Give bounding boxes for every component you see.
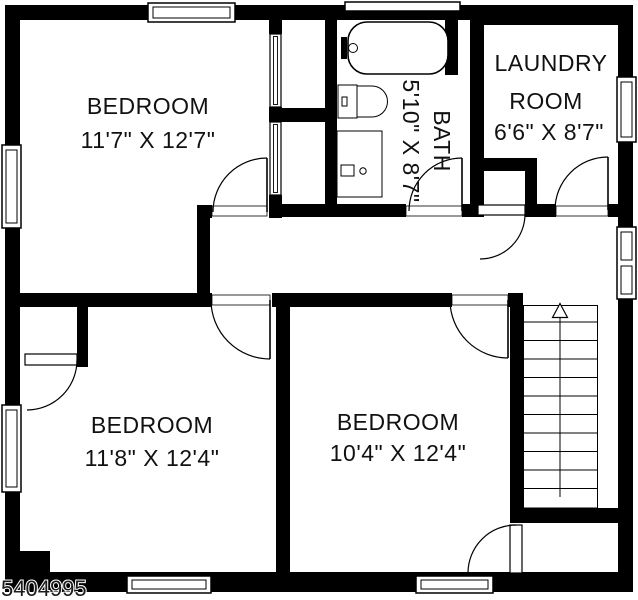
wall-bath-bottom-right [462,204,470,217]
wall-closet-stub-mid [269,107,282,122]
wall-mid-center [272,293,452,307]
wall-bath-laundry [470,20,484,217]
wall-bath-bottom-left [337,204,406,217]
wall-outer-bottom [5,572,633,592]
window-left-bottom-bedroom [2,405,21,492]
wall-outer-top-laundry [470,5,633,25]
window-bottom-right-bedroom [416,576,493,593]
wall-bl-closet-stub [77,293,88,367]
bedroom-top-left-name: BEDROOM [87,93,209,119]
toilet-icon [338,85,388,118]
bathtub-icon [341,22,448,74]
wall-hall-nook [197,218,210,298]
bedroom-bottom-right-name: BEDROOM [337,409,459,435]
window-bath-top [345,2,460,11]
wall-stairs-left [510,293,523,523]
window-right-laundry [617,77,636,142]
vanity-sink-icon [337,131,382,197]
bath-name: BATH [429,110,455,172]
window-right-hallway [617,227,636,299]
wall-laundry-bottom-right [608,204,633,217]
closet-sliding-door-lower [270,122,281,195]
wall-closet-right [325,20,337,217]
floor-plan-page: BEDROOM 11'7" X 12'7" LAUNDRY ROOM 6'6" … [0,0,638,600]
wall-hallcloset-right [525,158,537,217]
bedroom-top-left-dimensions: 11'7" X 12'7" [81,127,216,153]
laundry-name-line1: LAUNDRY [495,50,608,76]
wall-closet-stub-bottom [269,195,282,218]
window-left-top-bedroom [2,145,21,228]
bedroom-bottom-left-dimensions: 11'8" X 12'4" [85,445,220,471]
bedroom-bottom-left-name: BEDROOM [91,412,213,438]
wall-closet-divider [282,108,325,122]
window-bottom-left-bedroom [127,576,211,593]
wall-tl-bedroom-door-left [197,205,212,218]
wall-closet-stub-top [269,20,282,34]
laundry-name-line2: ROOM [509,88,583,114]
wall-laundry-bottom-left [537,204,556,217]
window-top-bedroom [148,3,235,22]
wall-stairs-bottom [510,508,633,523]
tub-faucet-icon [341,37,347,59]
closet-sliding-door-upper [270,34,281,107]
wall-mid-left [5,293,212,307]
floor-plan-drawing: BEDROOM 11'7" X 12'7" LAUNDRY ROOM 6'6" … [0,0,638,600]
bedroom-bottom-right-dimensions: 10'4" X 12'4" [330,440,466,466]
wall-closet-bottom [282,204,325,217]
laundry-dimensions: 6'6" X 8'7" [494,119,604,145]
wall-bedrooms-divider [276,293,290,574]
watermark-id: 5404995 [1,576,87,600]
bath-dimensions: 5'10" X 8'7" [398,79,424,202]
